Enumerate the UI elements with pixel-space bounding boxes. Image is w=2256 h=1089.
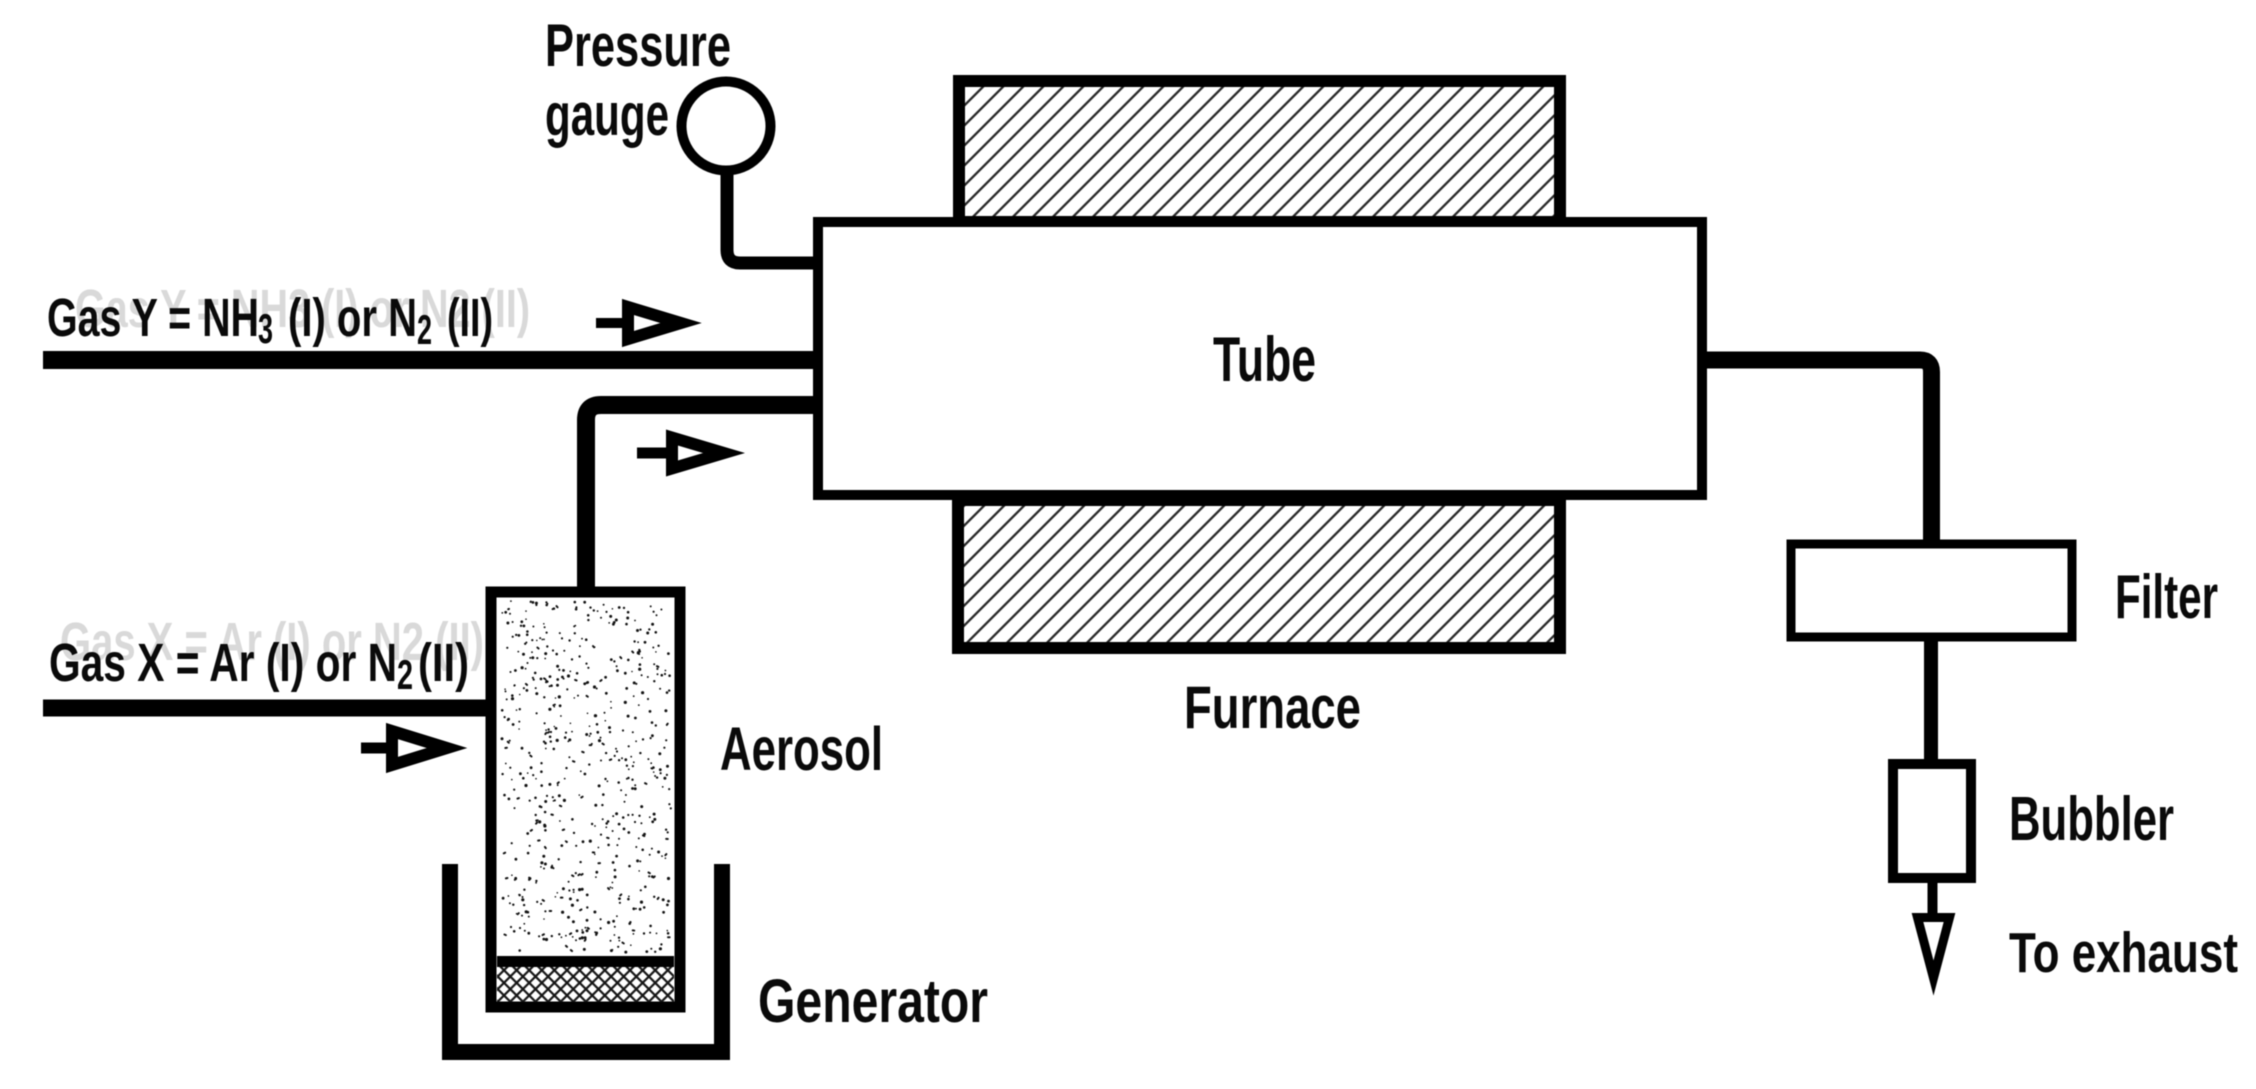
svg-text:gauge: gauge [545,81,669,148]
svg-text:Bubbler: Bubbler [2009,785,2174,854]
svg-text:Tube: Tube [1213,325,1316,395]
svg-text:Gas X = Ar (I) or N: Gas X = Ar (I) or N [49,633,397,693]
svg-text:(II): (II) [418,633,469,693]
svg-text:Aerosol: Aerosol [720,715,883,783]
svg-text:Gas Y = NH: Gas Y = NH [47,288,259,348]
svg-text:2: 2 [397,651,413,698]
svg-text:2: 2 [417,306,432,353]
svg-text:Pressure: Pressure [545,12,731,79]
svg-text:Generator: Generator [758,967,988,1035]
svg-text:To exhaust: To exhaust [2009,921,2238,985]
svg-text:Filter: Filter [2115,563,2218,632]
svg-text:(II): (II) [447,288,493,348]
svg-text:(I) or N: (I) or N [288,288,417,348]
svg-text:3: 3 [258,305,273,352]
svg-text:Furnace: Furnace [1184,674,1361,741]
